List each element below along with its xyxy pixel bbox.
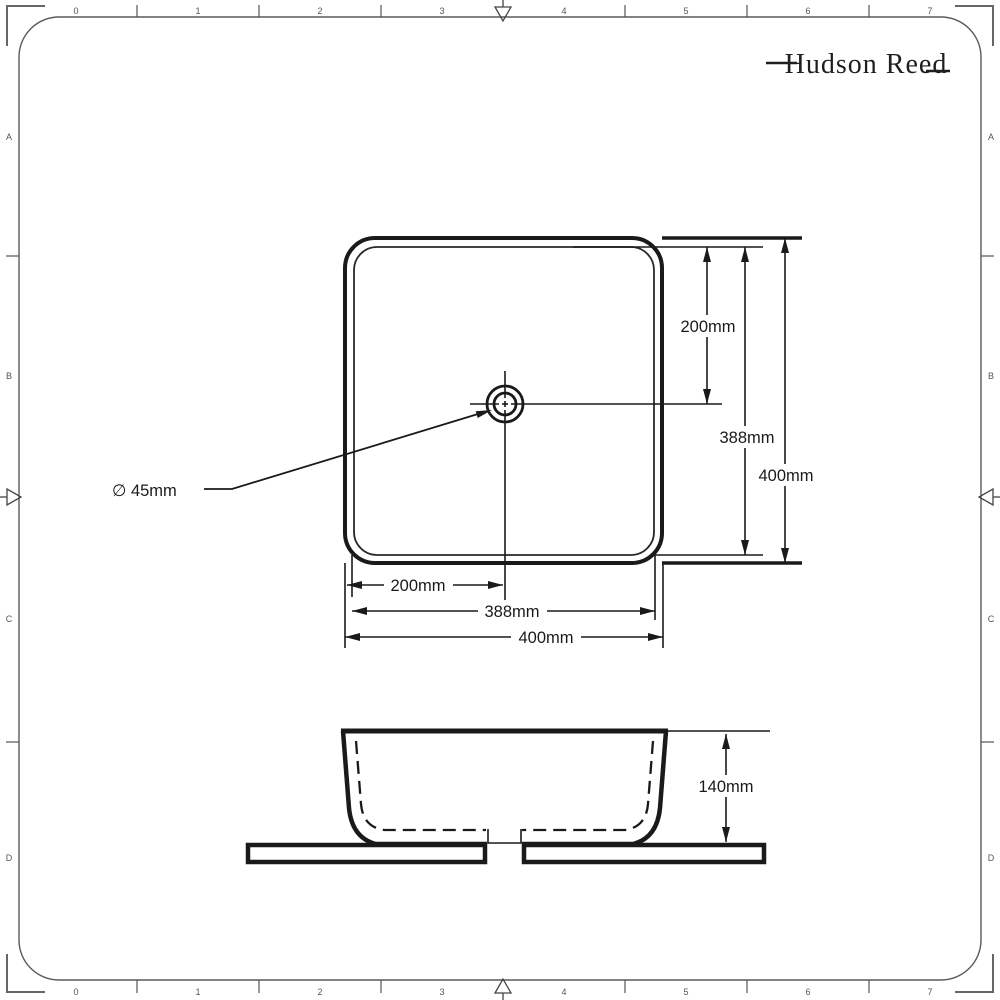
elevation-hidden-inner-wall (356, 741, 653, 830)
corner-bracket-bottom-right (955, 954, 993, 992)
ruler-number: 3 (439, 6, 444, 16)
ruler-letter: B (6, 371, 12, 381)
ruler-letter: B (988, 371, 994, 381)
dimension-lines-vertical (707, 238, 785, 563)
ruler-letter: C (988, 614, 995, 624)
center-mark-top (495, 0, 511, 21)
dim-plan-outer-horizontal: 400mm (518, 629, 573, 647)
drain-hole (470, 371, 722, 600)
ruler-number: 5 (683, 987, 688, 997)
basin-outer-rim (345, 238, 662, 563)
dim-elevation-height: 140mm (698, 778, 753, 796)
ruler-number: 7 (927, 6, 932, 16)
ruler-number: 5 (683, 6, 688, 16)
countertop-right-slab (524, 845, 764, 862)
dim-plan-inner-horizontal: 388mm (484, 603, 539, 621)
corner-bracket-bottom-left (7, 954, 45, 992)
center-mark-right (979, 489, 1000, 505)
ruler-letter: D (6, 853, 13, 863)
elevation-left-wall (343, 731, 487, 844)
dim-plan-center-vertical: 200mm (680, 318, 735, 336)
drawing-frame: 0 1 2 3 4 5 6 7 0 1 2 3 4 5 6 7 A B C D … (0, 0, 1000, 1000)
ruler-letter: A (988, 132, 994, 142)
elevation-height-dimension: 140mm (668, 731, 770, 842)
ruler-number: 4 (561, 987, 566, 997)
elevation-view: 140mm (248, 731, 770, 862)
corner-bracket-top-right (955, 6, 993, 46)
ruler-number: 2 (317, 987, 322, 997)
drain-crosshair (470, 371, 722, 600)
dim-plan-center-horizontal: 200mm (390, 577, 445, 595)
ruler-number: 4 (561, 6, 566, 16)
ruler-number: 0 (73, 6, 78, 16)
dimension-arrowheads-vertical (703, 238, 789, 563)
ruler-number: 1 (195, 6, 200, 16)
elevation-drain-outlet (488, 829, 521, 843)
plan-view: 200mm 388mm 400mm 200mm 388mm 400mm ∅ 45… (112, 238, 821, 648)
basin-inner-rim (354, 247, 654, 555)
ruler-letter: C (6, 614, 13, 624)
drain-leader: ∅ 45mm (112, 410, 492, 500)
dim-plan-inner-vertical: 388mm (719, 429, 774, 447)
corner-bracket-top-left (7, 6, 45, 46)
countertop-left-slab (248, 845, 485, 862)
ruler-number: 6 (805, 987, 810, 997)
ruler-letter: D (988, 853, 995, 863)
ruler-number: 1 (195, 987, 200, 997)
center-mark-bottom (495, 979, 511, 1000)
ruler-number: 2 (317, 6, 322, 16)
center-mark-left (0, 489, 21, 505)
ruler-number: 6 (805, 6, 810, 16)
ruler-letter: A (6, 132, 12, 142)
logo-text: Hudson Reed (785, 49, 948, 80)
ruler-number: 3 (439, 987, 444, 997)
dim-plan-outer-vertical: 400mm (758, 467, 813, 485)
elevation-right-wall (522, 731, 666, 844)
drawing-sheet: 0 1 2 3 4 5 6 7 0 1 2 3 4 5 6 7 A B C D … (0, 0, 1000, 1000)
ruler-number: 0 (73, 987, 78, 997)
dim-drain-diameter: ∅ 45mm (112, 482, 177, 500)
brand-logo: Hudson Reed (766, 49, 950, 80)
ruler-number: 7 (927, 987, 932, 997)
